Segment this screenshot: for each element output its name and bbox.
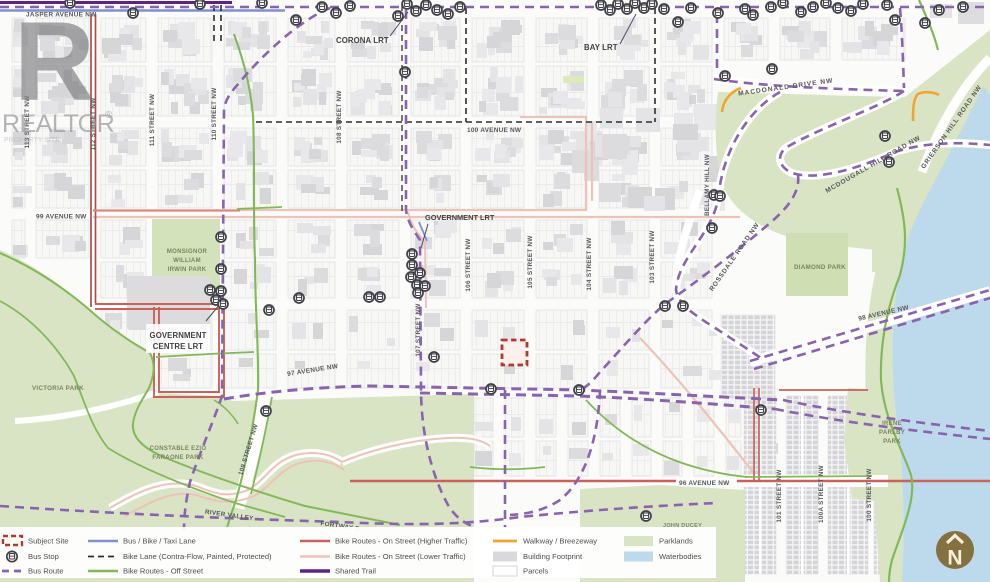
svg-text:®: ® bbox=[105, 110, 113, 121]
svg-text:110 STREET NW: 110 STREET NW bbox=[211, 88, 218, 141]
svg-text:99 AVENUE NW: 99 AVENUE NW bbox=[36, 214, 87, 221]
svg-text:BAY LRT: BAY LRT bbox=[584, 43, 618, 52]
svg-text:VICTORIA PARK: VICTORIA PARK bbox=[32, 385, 84, 392]
svg-text:Subject Site: Subject Site bbox=[28, 537, 69, 546]
svg-text:BELLAMY HILL NW: BELLAMY HILL NW bbox=[704, 154, 711, 216]
svg-text:R: R bbox=[14, 0, 95, 124]
svg-text:106 STREET NW: 106 STREET NW bbox=[465, 238, 472, 291]
svg-text:111 STREET NW: 111 STREET NW bbox=[149, 94, 156, 147]
svg-text:PARLBY: PARLBY bbox=[879, 430, 905, 436]
svg-text:107 STREET NW: 107 STREET NW bbox=[415, 303, 422, 356]
svg-text:DIAMOND PARK: DIAMOND PARK bbox=[794, 264, 846, 271]
svg-text:IRWIN PARK: IRWIN PARK bbox=[168, 267, 207, 273]
svg-text:CONSTABLE EZIO: CONSTABLE EZIO bbox=[150, 446, 207, 452]
svg-text:Shared Trail: Shared Trail bbox=[335, 567, 376, 576]
svg-text:Bike Lane (Contra-Flow, Painte: Bike Lane (Contra-Flow, Painted, Protect… bbox=[123, 552, 272, 561]
svg-text:Parcels: Parcels bbox=[523, 567, 549, 576]
svg-text:100 STREET NW: 100 STREET NW bbox=[866, 468, 873, 521]
svg-text:PARK: PARK bbox=[883, 439, 901, 445]
svg-text:100 AVENUE NW: 100 AVENUE NW bbox=[467, 127, 522, 134]
svg-text:Bike Routes - On Street (Highe: Bike Routes - On Street (Higher Traffic) bbox=[335, 537, 468, 546]
svg-text:N: N bbox=[947, 547, 962, 570]
svg-text:108 STREET NW: 108 STREET NW bbox=[336, 90, 343, 143]
svg-text:FARAONE PARK: FARAONE PARK bbox=[152, 455, 204, 461]
svg-text:Bus Stop: Bus Stop bbox=[28, 552, 59, 561]
svg-text:PROPERTY SITE: PROPERTY SITE bbox=[4, 137, 60, 144]
svg-text:Bike Routes - Off Street: Bike Routes - Off Street bbox=[123, 567, 204, 576]
svg-text:GOVERNMENT: GOVERNMENT bbox=[150, 331, 207, 340]
svg-text:Building Footprint: Building Footprint bbox=[523, 552, 583, 561]
svg-text:Bus Route: Bus Route bbox=[28, 567, 63, 576]
svg-text:101 STREET NW: 101 STREET NW bbox=[776, 469, 783, 522]
svg-text:CORONA LRT: CORONA LRT bbox=[336, 36, 389, 45]
svg-text:104 STREET NW: 104 STREET NW bbox=[586, 237, 593, 290]
svg-text:Parklands: Parklands bbox=[659, 537, 693, 546]
svg-text:Walkway / Breezeway: Walkway / Breezeway bbox=[523, 537, 597, 546]
svg-text:IRENE: IRENE bbox=[882, 421, 902, 427]
svg-text:MONSIGNOR: MONSIGNOR bbox=[167, 249, 208, 255]
svg-text:WILLIAM: WILLIAM bbox=[173, 258, 201, 264]
svg-text:96 AVENUE NW: 96 AVENUE NW bbox=[679, 480, 730, 487]
svg-text:103 STREET NW: 103 STREET NW bbox=[649, 230, 656, 283]
svg-text:105 STREET NW: 105 STREET NW bbox=[527, 235, 534, 288]
svg-text:100A STREET NW: 100A STREET NW bbox=[818, 465, 825, 523]
svg-text:REALTOR: REALTOR bbox=[2, 110, 114, 138]
svg-text:GOVERNMENT LRT: GOVERNMENT LRT bbox=[425, 213, 495, 222]
svg-text:Waterbodies: Waterbodies bbox=[659, 552, 702, 561]
svg-text:Bus / Bike / Taxi Lane: Bus / Bike / Taxi Lane bbox=[123, 537, 196, 546]
svg-text:CENTRE LRT: CENTRE LRT bbox=[153, 342, 204, 351]
svg-text:Bike Routes - On Street (Lower: Bike Routes - On Street (Lower Traffic) bbox=[335, 552, 466, 561]
